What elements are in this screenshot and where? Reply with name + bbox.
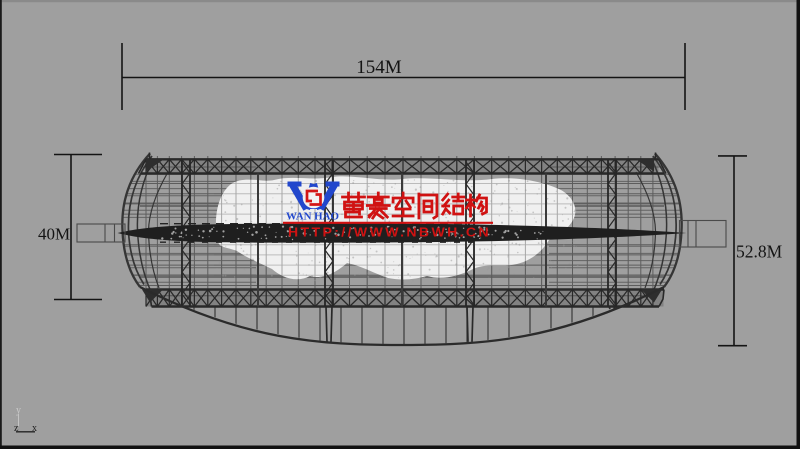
svg-text:154M: 154M (356, 57, 402, 78)
svg-text:52.8M: 52.8M (736, 242, 783, 262)
svg-text:WAN HAO: WAN HAO (286, 212, 339, 223)
svg-text:HTTP://WWW.NBWH.CN: HTTP://WWW.NBWH.CN (288, 225, 491, 240)
svg-text:40M: 40M (38, 225, 70, 244)
